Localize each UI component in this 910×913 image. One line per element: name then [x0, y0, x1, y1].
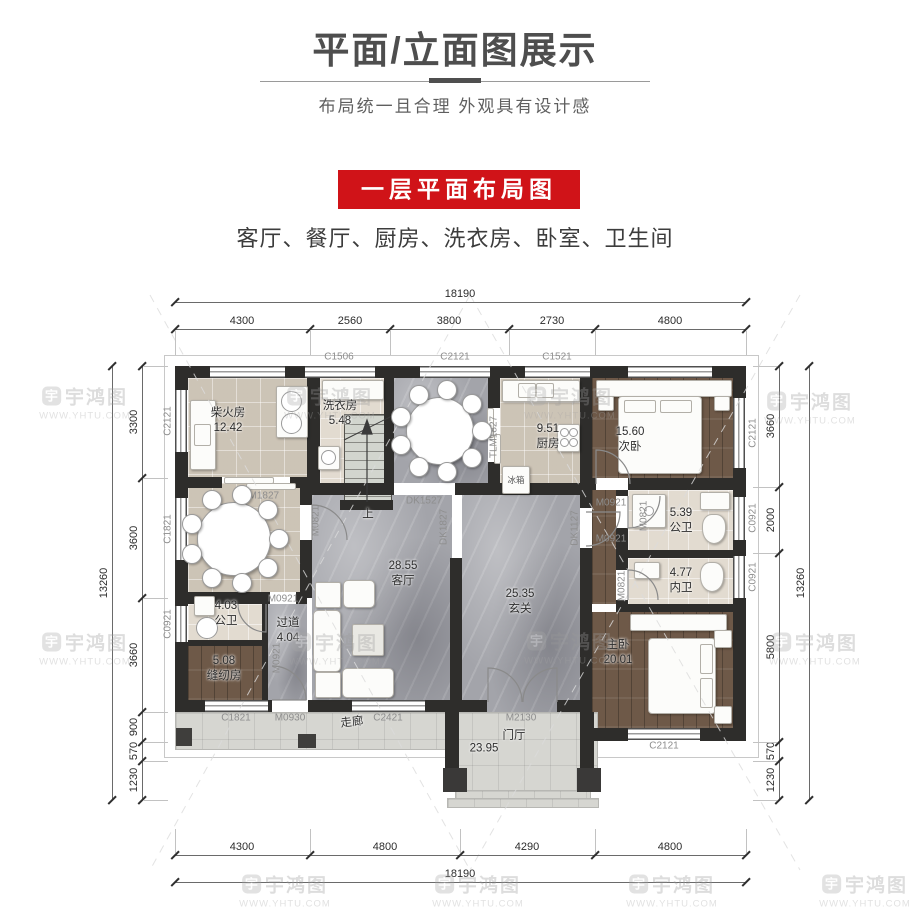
dim-line-bottom-total	[175, 882, 746, 883]
watermark: 宇 宇鸿图 WWW.YHTU.COM	[39, 629, 131, 668]
dim-ext	[746, 829, 747, 853]
door-label-m0921-guodao: M0921	[268, 594, 299, 605]
wall	[592, 728, 628, 741]
pillow	[700, 678, 713, 708]
dim-right-seg: 2000	[765, 508, 777, 532]
fridge-label: 冰箱	[507, 474, 524, 486]
stove-burner	[560, 428, 569, 437]
window-c0921-right-2	[733, 556, 745, 598]
window-label-c1821-bottom: C1821	[221, 713, 250, 724]
room-label-keting: 28.55客厅	[389, 559, 418, 589]
window-c2121-bottom	[628, 728, 700, 740]
sink	[194, 424, 211, 446]
dim-line-right-total	[809, 366, 810, 800]
dim-line-left-segments	[142, 366, 143, 800]
chair	[182, 514, 202, 534]
door-label-m0821-neiwei: M0821	[617, 571, 628, 602]
dim-ext	[144, 598, 168, 599]
wall	[592, 478, 596, 490]
wall	[175, 560, 188, 606]
window-c2121-top	[420, 366, 490, 378]
bathroom-sink	[700, 492, 730, 510]
watermark: 宇 宇鸿图 WWW.YHTU.COM	[764, 388, 856, 427]
watermark-brand: 宇鸿图	[845, 871, 908, 898]
toilet	[702, 514, 726, 544]
wall	[425, 700, 487, 712]
wall	[488, 462, 500, 483]
room-label-xiyifang: 洗衣房5.48	[323, 399, 358, 429]
watermark-logo-icon: 宇	[822, 875, 841, 894]
wall	[175, 452, 188, 498]
coffee-table	[352, 624, 384, 656]
door-label-m0930: M0930	[275, 713, 306, 724]
dim-ext	[310, 331, 311, 355]
dim-bottom-total: 18190	[445, 868, 476, 880]
headboard-shelf	[596, 380, 732, 397]
wall	[300, 540, 312, 598]
stove-burner	[281, 413, 302, 434]
wall	[285, 366, 305, 378]
chair	[391, 435, 411, 455]
window-label-c1521: C1521	[542, 352, 571, 363]
watermark-brand: 宇鸿图	[65, 383, 128, 410]
room-label-zoulang: 走廊	[340, 714, 364, 731]
stairs-up-label: 上	[362, 508, 374, 523]
window-c0921-left	[175, 606, 187, 642]
wall	[490, 366, 525, 378]
porch-wall	[445, 712, 459, 770]
dim-line-top-total	[175, 302, 746, 303]
dim-ext	[144, 366, 168, 367]
dim-top-total: 18190	[445, 288, 476, 300]
room-label-chufang: 9.51厨房	[537, 422, 560, 452]
side-table	[315, 582, 341, 608]
nightstand	[714, 396, 730, 411]
dim-ext	[144, 761, 168, 762]
dim-ext	[746, 331, 747, 355]
wall	[580, 378, 592, 490]
kitchen-sink	[536, 383, 554, 398]
wall	[488, 378, 500, 408]
wall	[188, 640, 262, 646]
pillow	[700, 644, 713, 674]
page-title: 平面/立面图展示	[0, 20, 910, 74]
watermark-site: WWW.YHTU.COM	[239, 899, 331, 910]
watermark-brand: 宇鸿图	[795, 629, 858, 656]
window-label-c2121-right: C2121	[748, 418, 759, 447]
dim-left-seg: 900	[128, 718, 140, 736]
chair	[182, 544, 202, 564]
door-label-m2130: M2130	[506, 713, 537, 724]
wall	[188, 477, 222, 488]
stove-burner	[281, 391, 302, 412]
side-table	[315, 672, 341, 698]
wall	[733, 598, 746, 741]
dim-ext	[144, 712, 168, 713]
dim-ext	[595, 829, 596, 853]
floor-porch	[445, 712, 598, 792]
wall	[262, 604, 268, 700]
nightstand	[714, 706, 732, 724]
dim-right-seg: 1230	[765, 768, 777, 792]
watermark-brand: 宇鸿图	[790, 388, 853, 415]
window-c1521	[525, 366, 590, 378]
dim-top-seg: 4300	[230, 315, 254, 327]
dim-ext	[509, 331, 510, 355]
watermark: 宇 宇鸿图 WWW.YHTU.COM	[819, 871, 910, 910]
window-top-ciwo	[628, 366, 712, 378]
watermark-logo-icon: 宇	[42, 633, 61, 652]
wall	[616, 604, 733, 612]
dim-left-seg: 3660	[128, 643, 140, 667]
chair	[202, 490, 222, 510]
watermark-site: WWW.YHTU.COM	[39, 411, 131, 422]
armchair	[343, 580, 375, 608]
door-label-m0921-guodao-v: M0921	[272, 643, 283, 674]
wall	[268, 700, 272, 712]
veranda-column	[176, 728, 192, 746]
stove-burner	[560, 438, 569, 447]
chair	[391, 407, 411, 427]
wall	[175, 366, 188, 390]
window-label-c0921-right-1: C0921	[748, 503, 759, 532]
window-label-c0921-right-2: C0921	[748, 562, 759, 591]
dim-bottom-seg: 4300	[230, 841, 254, 853]
window-c0921-right-1	[733, 497, 745, 540]
section-banner: 一层平面布局图	[338, 170, 580, 209]
stove-burner	[569, 438, 578, 447]
dim-ext	[753, 800, 777, 801]
sofa	[313, 610, 341, 672]
wall	[384, 378, 394, 483]
window-label-c0921-left: C0921	[163, 609, 174, 638]
dim-ext	[390, 331, 391, 355]
opening-label-dk1527: DK1527	[406, 496, 442, 507]
opening-label-dk1827: DK1827	[439, 509, 450, 545]
watermark-logo-icon: 宇	[767, 392, 786, 411]
chair	[269, 529, 289, 549]
room-label-gongwei-e: 5.39公卫	[670, 506, 693, 536]
watermark: 宇 宇鸿图 WWW.YHTU.COM	[239, 871, 331, 910]
watermark-site: WWW.YHTU.COM	[769, 657, 861, 668]
dim-top-seg: 2730	[540, 315, 564, 327]
wall	[307, 483, 394, 495]
wall	[700, 728, 746, 741]
watermark-logo-icon: 宇	[629, 875, 648, 894]
dim-ext	[753, 366, 777, 367]
dim-top-seg: 2560	[338, 315, 362, 327]
room-label-ciwo: 15.60次卧	[616, 425, 645, 455]
dim-ext	[753, 487, 777, 488]
opening-label-dk1127: DK1127	[570, 510, 581, 545]
chair	[202, 568, 222, 588]
chair	[232, 573, 252, 593]
wall	[628, 550, 733, 558]
washer-door	[321, 450, 336, 465]
dim-ext	[595, 331, 596, 355]
room-label-xuanguan: 25.35玄关	[506, 587, 535, 617]
wall	[580, 490, 592, 508]
window-c1506	[305, 366, 375, 378]
watermark: 宇 宇鸿图 WWW.YHTU.COM	[39, 383, 131, 422]
door-label-m0921-suite: M0921	[596, 534, 627, 545]
room-label-chaihuofang: 柴火房12.42	[211, 406, 246, 436]
dim-bottom-seg: 4290	[515, 841, 539, 853]
kitchen-sink	[518, 383, 536, 398]
window-label-c1506: C1506	[324, 352, 353, 363]
dim-ext	[175, 331, 176, 355]
dim-ext	[175, 829, 176, 853]
window-c1821-bottom	[205, 700, 268, 712]
fridge: 冰箱	[502, 466, 530, 494]
dim-line-top-segments	[175, 329, 746, 330]
dim-ext	[460, 829, 461, 853]
watermark-brand: 宇鸿图	[652, 871, 715, 898]
watermark-logo-icon: 宇	[242, 875, 261, 894]
dim-bottom-seg: 4800	[373, 841, 397, 853]
room-label-zhuwo: 主卧20.01	[604, 638, 633, 668]
dim-ext	[144, 742, 168, 743]
loveseat	[342, 668, 394, 698]
wall	[375, 366, 420, 378]
wall	[175, 700, 205, 712]
window-c2121-left	[175, 390, 187, 452]
dim-ext	[753, 761, 777, 762]
chair	[232, 485, 252, 505]
window-c2121-right	[733, 398, 745, 468]
dim-ext	[144, 800, 168, 801]
dim-right-seg: 5800	[765, 635, 777, 659]
room-label-fengrenfang: 5.08缝纫房	[207, 654, 242, 684]
dim-line-right-segments	[779, 366, 780, 800]
room-label-neiwei: 4.77内卫	[670, 566, 693, 596]
dim-left-seg: 3300	[128, 410, 140, 434]
wall	[628, 478, 733, 490]
dim-left-seg: 1230	[128, 768, 140, 792]
watermark-brand: 宇鸿图	[265, 871, 328, 898]
chair	[409, 385, 429, 405]
door-label-tlm1827-v: TLM1827	[489, 416, 500, 458]
toilet	[700, 562, 724, 592]
gas-stove	[557, 424, 580, 452]
dim-tick	[742, 298, 751, 307]
nightstand	[598, 396, 614, 411]
wall	[733, 468, 746, 497]
dim-tick	[108, 796, 117, 805]
toilet	[194, 596, 215, 616]
dim-tick	[742, 878, 751, 887]
dim-top-seg: 4800	[658, 315, 682, 327]
dim-left-seg: 3600	[128, 526, 140, 550]
window-label-c2121-bottom: C2121	[649, 741, 678, 752]
wall	[616, 490, 628, 496]
wall	[733, 540, 746, 556]
room-label-gongwei-w: 4.03公卫	[215, 599, 238, 629]
watermark-brand: 宇鸿图	[65, 629, 128, 656]
watermark-site: WWW.YHTU.COM	[819, 899, 910, 910]
dim-tick	[805, 796, 814, 805]
watermark-site: WWW.YHTU.COM	[626, 899, 718, 910]
door-label-m0821-gongwei: M0821	[639, 501, 650, 532]
room-label-menting: 门厅	[503, 729, 526, 744]
title-divider-accent	[429, 78, 481, 83]
window-top-chaihuofang	[210, 366, 285, 378]
watermark-logo-icon: 宇	[42, 387, 61, 406]
nightstand	[714, 630, 732, 648]
dim-line-left-total	[112, 366, 113, 800]
page-subtitle: 布局统一且合理 外观具有设计感	[0, 92, 910, 117]
chair	[472, 421, 492, 441]
porch-column	[577, 768, 601, 792]
window-label-c2121-left: C2121	[163, 406, 174, 435]
dresser	[630, 614, 727, 631]
dim-bottom-seg: 4800	[658, 841, 682, 853]
porch-wall	[580, 712, 594, 770]
dim-right-seg: 3660	[765, 414, 777, 438]
watermark-site: WWW.YHTU.COM	[764, 416, 856, 427]
veranda-column	[298, 734, 316, 748]
watermark: 宇 宇鸿图 WWW.YHTU.COM	[769, 629, 861, 668]
sliding-door-tlm1827-h	[246, 483, 296, 490]
pillow	[660, 400, 692, 413]
window-label-c1821-left: C1821	[163, 514, 174, 543]
door-label-m0821-canting: M0821	[311, 506, 322, 537]
porch-column	[443, 768, 467, 792]
window-label-c2121-top: C2121	[440, 352, 469, 363]
laundry-counter	[322, 380, 384, 400]
dim-right-total: 13260	[795, 568, 807, 599]
dim-ext	[310, 829, 311, 853]
wall	[590, 366, 628, 378]
window-c2421	[352, 700, 425, 712]
pillow	[624, 400, 656, 413]
watermark-site: WWW.YHTU.COM	[39, 657, 131, 668]
dim-ext	[144, 478, 168, 479]
room-area-menting: 23.95	[470, 742, 499, 757]
bathroom-sink	[634, 562, 660, 579]
stove-burner	[569, 428, 578, 437]
chair	[437, 380, 457, 400]
wall	[308, 700, 352, 712]
page: { "header": { "title": "平面/立面图展示", "subt…	[0, 0, 910, 913]
wall	[450, 558, 462, 700]
dim-ext	[753, 742, 777, 743]
dim-top-seg: 3800	[437, 315, 461, 327]
wall	[733, 366, 746, 398]
dim-ext	[753, 553, 777, 554]
window-label-c2421: C2421	[373, 713, 402, 724]
wall	[580, 548, 592, 712]
floor-veranda	[175, 712, 462, 750]
watermark: 宇 宇鸿图 WWW.YHTU.COM	[626, 871, 718, 910]
porch-step-2	[447, 798, 599, 808]
watermark-site: WWW.YHTU.COM	[432, 899, 524, 910]
door-label-m0921-ciwo: M0921	[596, 498, 627, 509]
dim-left-total: 13260	[98, 568, 110, 599]
room-list: 客厅、餐厅、厨房、洗衣房、卧室、卫生间	[0, 221, 910, 253]
